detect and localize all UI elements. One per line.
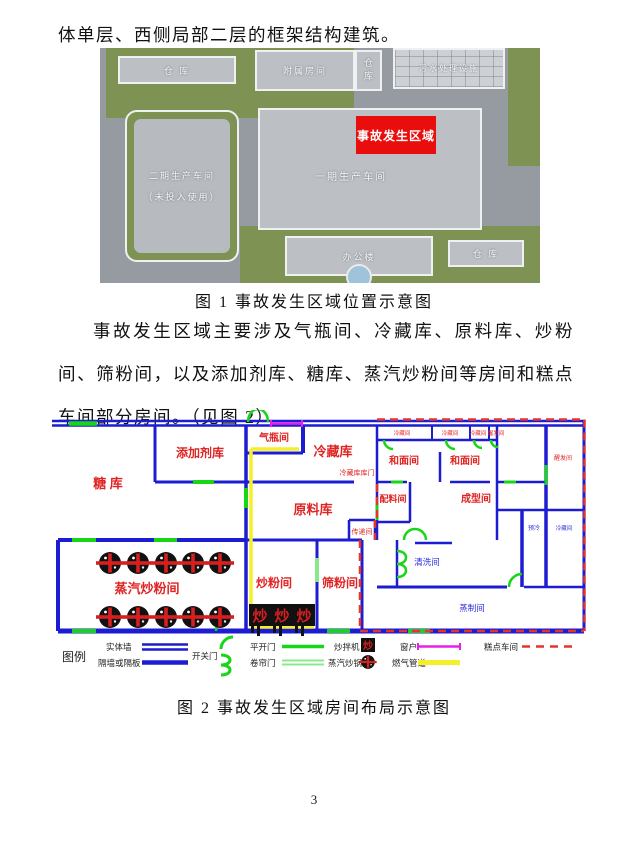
phase2-label-line2: （未投入使用）	[143, 190, 220, 203]
grass-right-strip	[508, 48, 540, 166]
legend-partition: 隔墙或隔板	[98, 658, 141, 668]
building-sewage-facility: 污水处理设施	[393, 48, 505, 89]
legend-mixer: 炒拌机	[334, 642, 360, 652]
room-cold-3: 冷藏间	[470, 429, 487, 437]
legend-steam-wok: 蒸汽炒锅	[328, 658, 362, 668]
room-sifting: 筛粉间	[322, 575, 358, 590]
figure2-floor-plan: 炒 炒 炒 糖 库 添加剂库 气瓶间 冷藏库 冷藏库库门 原料库 传递间 配料间…	[50, 410, 610, 688]
room-dough-left: 和面间	[388, 454, 419, 467]
room-dough-right: 和面间	[449, 454, 480, 467]
legend-swing-door: 开关门	[192, 651, 218, 661]
room-gas-cylinder: 气瓶间	[258, 431, 289, 444]
legend-title: 图例	[62, 650, 86, 664]
room-labels: 糖 库 添加剂库 气瓶间 冷藏库 冷藏库库门 原料库 传递间 配料间 和面间 和…	[93, 429, 572, 613]
room-steaming: 蒸制间	[459, 603, 485, 613]
room-transfer: 传递间	[352, 527, 373, 536]
building-phase2-workshop: 二期生产车间 （未投入使用）	[125, 110, 239, 262]
room-stirfry: 炒粉间	[256, 575, 292, 590]
attached-rooms-label: 附属房间	[283, 64, 327, 77]
warehouse-bottom-right-label: 仓 库	[473, 247, 500, 260]
room-precool: 预冷	[528, 524, 540, 532]
figure2-caption: 图 2 事故发生区域房间布局示意图	[0, 694, 628, 718]
phase2-roof: 二期生产车间 （未投入使用）	[134, 119, 230, 253]
gas-pipeline	[251, 449, 314, 627]
room-washing: 清洗间	[414, 557, 440, 567]
room-additive-store: 添加剂库	[176, 445, 224, 460]
room-sugar-store: 糖 库	[93, 476, 123, 491]
page-number: 3	[0, 792, 628, 808]
svg-text:炒: 炒	[252, 608, 267, 625]
warehouse-top-left-label: 仓 库	[164, 64, 191, 77]
legend-solid-wall: 实体墙	[106, 642, 132, 652]
office-label: 办公楼	[342, 250, 375, 263]
room-cold-1: 冷藏间	[394, 429, 411, 437]
legend-mixer-swatch: 炒	[361, 638, 375, 652]
figure1-aerial-view: 仓 库 附属房间 仓库 污水处理设施 二期生产车间 （未投入使用） 一期生产车间…	[100, 48, 540, 283]
legend-window: 窗户	[400, 642, 417, 652]
fountain	[346, 264, 372, 283]
building-warehouse-top-mid: 仓库	[355, 50, 382, 91]
accident-area-box: 事故发生区域	[356, 116, 436, 154]
phase1-label: 一期生产车间	[315, 168, 387, 183]
room-cold-storage: 冷藏库	[313, 444, 352, 459]
phase2-label-line1: 二期生产车间	[149, 169, 215, 182]
accident-area-label: 事故发生区域	[357, 127, 435, 144]
building-phase1-workshop: 一期生产车间 事故发生区域	[258, 108, 482, 230]
room-proofing-right: 醒发间	[554, 454, 572, 462]
label-cold-storage-door: 冷藏库库门	[340, 468, 375, 477]
doors	[69, 424, 546, 632]
document-page: 体单层、西侧局部二层的框架结构建筑。 仓 库 附属房间 仓库 污水处理设施 二期…	[0, 0, 628, 845]
legend-window-swatch	[418, 643, 460, 650]
room-proofing-top: 醒发间	[488, 429, 505, 437]
building-attached-rooms: 附属房间	[255, 50, 355, 91]
building-warehouse-bottom-right: 仓 库	[448, 240, 524, 267]
figure1-caption: 图 1 事故发生区域位置示意图	[0, 288, 628, 312]
svg-text:炒: 炒	[296, 608, 311, 625]
svg-text:炒: 炒	[363, 640, 373, 652]
legend: 图例 实体墙 隔墙或隔板 开关门 平开门 卷帘门 炒拌机 炒 蒸汽炒锅	[62, 637, 572, 675]
room-raw-material: 原料库	[293, 502, 332, 517]
legend-rolling-door: 卷帘门	[250, 658, 276, 668]
room-cold-right: 冷藏间	[556, 524, 573, 532]
room-batching: 配料间	[379, 493, 406, 504]
room-steam-stirfry: 蒸汽炒粉间	[114, 581, 179, 596]
building-warehouse-top-left: 仓 库	[118, 56, 236, 84]
svg-text:炒: 炒	[274, 608, 289, 625]
legend-swing-door-swatch	[221, 637, 233, 675]
warehouse-top-mid-label: 仓库	[362, 58, 375, 84]
legend-cake-workshop: 糕点车间	[484, 642, 518, 652]
cake-workshop-boundary	[360, 420, 585, 632]
room-forming: 成型间	[461, 492, 491, 505]
legend-flat-door: 平开门	[250, 642, 276, 652]
room-cold-2: 冷藏间	[442, 429, 459, 437]
sewage-facility-label: 污水处理设施	[419, 63, 479, 74]
